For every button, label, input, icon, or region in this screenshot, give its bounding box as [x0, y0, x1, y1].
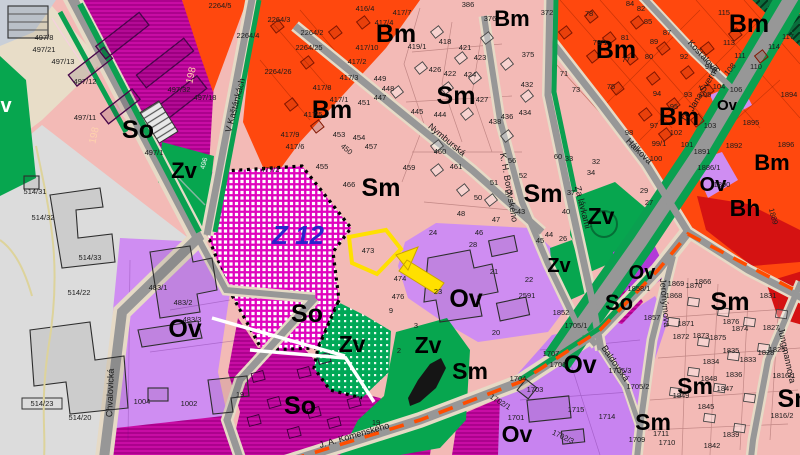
parcel-label: 1714 — [599, 412, 616, 421]
parcel-label: 372 — [541, 8, 554, 17]
parcel-label: 1836 — [726, 370, 743, 379]
parcel-label: 1816/2 — [771, 411, 794, 420]
parcel-label: 460 — [434, 147, 447, 156]
parcel-label: 46 — [475, 228, 483, 237]
parcel-label: 1703 — [527, 385, 544, 394]
parcel-label: 77 — [622, 55, 630, 64]
zone-label: So — [122, 116, 154, 144]
parcel-label: 483/2 — [174, 298, 193, 307]
parcel-label: 44 — [545, 230, 553, 239]
zone-label: So — [284, 392, 316, 420]
parcel-label: 92 — [680, 52, 688, 61]
zone-label: Zv — [171, 158, 197, 183]
parcel-label: 461 — [450, 162, 463, 171]
parcel-label: 2264/3 — [268, 15, 291, 24]
parcel-label: 1828 — [758, 348, 775, 357]
parcel-label: 1709 — [629, 435, 646, 444]
parcel-label: 454 — [353, 133, 366, 142]
parcel-label: 102 — [670, 128, 683, 137]
parcel-label: 497/18 — [194, 93, 217, 102]
parcel-label: 436 — [501, 112, 514, 121]
parcel-label: 447 — [374, 93, 387, 102]
parcel-label: 1704 — [510, 374, 527, 383]
parcel-label: 98 — [625, 128, 633, 137]
parcel-label: 117 — [782, 32, 794, 41]
parcel-label: 514/31 — [24, 187, 47, 196]
zone-label: Bm — [754, 150, 789, 175]
parcel-label: 514/20 — [69, 413, 92, 422]
parcel-label: 1894 — [781, 90, 798, 99]
parcel-label: 1896 — [778, 140, 795, 149]
parcel-label: 115 — [718, 8, 730, 17]
parcel-label: 1857 — [644, 313, 661, 322]
parcel-label: 497/1 — [145, 148, 164, 157]
zone-label: Ov — [449, 285, 482, 313]
parcel-label: 497/13 — [52, 57, 75, 66]
parcel-label: 81 — [621, 33, 629, 42]
parcel-label: 1707 — [543, 349, 560, 358]
parcel-label: 60 — [554, 152, 562, 161]
parcel-label: 514/33 — [79, 253, 102, 262]
parcel-label: 514/23 — [31, 399, 54, 408]
parcel-label: 54 — [505, 188, 513, 197]
parcel-label: 93 — [684, 90, 692, 99]
parcel-label: 3 — [414, 321, 418, 330]
parcel-label: 32 — [592, 157, 600, 166]
parcel-label: 73 — [572, 85, 580, 94]
parcel-label: 1873 — [693, 331, 710, 340]
parcel-label: 87 — [663, 28, 671, 37]
parcel-label: 1848 — [701, 374, 718, 383]
parcel-label: 376 — [484, 14, 497, 23]
parcel-label: 1858/1 — [628, 284, 651, 293]
zone-label: Sm — [711, 288, 750, 316]
parcel-label: 104 — [713, 82, 726, 91]
parcel-label: 449 — [374, 74, 387, 83]
parcel-label: 43 — [517, 207, 525, 216]
parcel-label: 2264/25 — [295, 43, 322, 52]
parcel-label: 434 — [519, 108, 532, 117]
parcel-label: 514/22 — [68, 288, 91, 297]
parcel-label: 50 — [474, 193, 482, 202]
parcel-label: 9 — [389, 306, 393, 315]
parcel-label: 1706 — [550, 360, 567, 369]
parcel-label: 1004 — [134, 397, 151, 406]
parcel-label: 1711 — [653, 429, 669, 438]
parcel-label: 2264/4 — [237, 31, 260, 40]
zone-label: Sm — [452, 358, 488, 384]
parcel-label: 474 — [394, 274, 407, 283]
zone-label: Zv — [339, 331, 366, 357]
parcel-label: 1701 — [508, 413, 525, 422]
parcel-label: 33 — [565, 154, 573, 163]
parcel-label: 438 — [489, 117, 502, 126]
parcel-label: 1869 — [668, 279, 685, 288]
parcel-label: 417/3 — [340, 73, 359, 82]
parcel-label: 2264/26 — [264, 67, 291, 76]
parcel-label: 1890 — [714, 180, 731, 189]
parcel-label: 1835 — [723, 346, 740, 355]
parcel-label: 423 — [474, 53, 487, 62]
parcel-label: 1868 — [666, 291, 683, 300]
parcel-label: 417/8 — [313, 83, 332, 92]
parcel-label: 2 — [397, 346, 401, 355]
parcel-label: 483/3 — [183, 315, 202, 324]
parcel-label: 37 — [567, 188, 575, 197]
zone-label: Bm — [494, 6, 529, 31]
parcel-label: 419/1 — [408, 42, 427, 51]
parcel-label: 20 — [492, 328, 500, 337]
parcel-label: 1892 — [726, 141, 743, 150]
zone-label: Sm — [524, 180, 563, 208]
parcel-label: 23 — [434, 287, 442, 296]
parcel-label: 457 — [365, 142, 378, 151]
parcel-label: 84 — [626, 0, 634, 8]
parcel-label: 95 — [670, 102, 678, 111]
parcel-label: 51 — [490, 178, 498, 187]
parcel-label: 1852 — [553, 308, 570, 317]
zone-label: Zv — [415, 332, 442, 358]
parcel-label: 417/1 — [330, 95, 349, 104]
parcel-label: 1705/3 — [609, 366, 632, 375]
parcel-label: 97 — [650, 121, 658, 130]
parcel-label: 1834 — [703, 357, 720, 366]
parcel-label: 75 — [607, 82, 615, 91]
parcel-label: 497/21 — [33, 45, 56, 54]
parcel-label: 111 — [734, 51, 745, 60]
parcel-label: 29 — [640, 186, 648, 195]
parcel-label: 1831 — [760, 291, 777, 300]
zone-label: So — [291, 300, 323, 328]
parcel-label: 22 — [525, 275, 533, 284]
parcel-label: 99/1 — [652, 139, 667, 148]
parcel-label: 444 — [434, 110, 447, 119]
parcel-label: 417/9 — [281, 130, 300, 139]
zone-label: So — [605, 290, 633, 315]
parcel-label: 421 — [459, 43, 472, 52]
parcel-label: 105 — [699, 90, 712, 99]
parcel-label: 78 — [585, 9, 593, 18]
parcel-label: 432 — [521, 80, 534, 89]
parcel-label: 56 — [508, 156, 516, 165]
parcel-label: 94 — [653, 89, 661, 98]
parcel-label: 89 — [650, 37, 658, 46]
parcel-label: 106 — [730, 85, 743, 94]
parcel-label: 19 — [236, 390, 244, 399]
parcel-label: 417/4 — [375, 18, 394, 27]
parcel-label: 2591 — [519, 291, 536, 300]
parcel-label: 477/2 — [261, 165, 280, 174]
parcel-label: 386 — [462, 0, 475, 9]
parcel-label: 1710 — [659, 438, 676, 447]
parcel-label: 1847 — [717, 384, 734, 393]
zone-label: Sm — [778, 385, 800, 413]
parcel-label: 514/32 — [32, 213, 55, 222]
zoning-map[interactable]: SoZvBmBmBmBmBmBmBmSmSmSmOvOvBhZvZvOvZvZv… — [0, 0, 800, 455]
parcel-label: 445 — [411, 107, 424, 116]
parcel-label: 455 — [316, 162, 329, 171]
parcel-label: 375 — [522, 50, 535, 59]
parcel-label: 34 — [587, 168, 595, 177]
parcel-label: 497/11 — [74, 113, 96, 122]
zone-label: Bm — [729, 10, 769, 38]
parcel-label: 1872 — [673, 332, 690, 341]
parcel-label: 101 — [681, 140, 694, 149]
parcel-label: 2264/5 — [209, 1, 232, 10]
parcel-label: 28 — [469, 240, 477, 249]
street-label: Chvalovická — [104, 368, 116, 417]
parcel-label: 47 — [492, 215, 500, 224]
map-viewport: SoZvBmBmBmBmBmBmBmSmSmSmOvOvBhZvZvOvZvZv… — [0, 0, 800, 455]
parcel-label: 1891 — [694, 147, 711, 156]
parcel-label: 1816/1 — [773, 371, 796, 380]
parcel-label: 1002 — [181, 399, 198, 408]
zone-label: Bh — [730, 195, 761, 221]
parcel-label: 1845 — [698, 402, 715, 411]
parcel-label: 427 — [476, 95, 489, 104]
zone-label: Ov — [717, 97, 738, 114]
parcel-label: 451 — [358, 98, 371, 107]
parcel-label: 85 — [644, 17, 652, 26]
zone-label: Ov — [629, 262, 657, 284]
parcel-label: 424 — [464, 70, 477, 79]
parcel-label: 466 — [343, 180, 356, 189]
parcel-label: 52 — [519, 171, 527, 180]
parcel-label: 110 — [750, 62, 762, 71]
parcel-label: 80 — [645, 52, 653, 61]
parcel-label: 113 — [723, 38, 735, 47]
parcel-label: 497/8 — [35, 33, 54, 42]
parcel-label: 422 — [444, 69, 457, 78]
parcel-label: 100 — [650, 154, 663, 163]
zone-label: v — [0, 95, 12, 117]
parcel-label: 1849 — [673, 391, 690, 400]
parcel-label: 45 — [536, 236, 544, 245]
parcel-label: 79/1 — [593, 38, 608, 47]
parcel-label: 1833 — [740, 355, 757, 364]
parcel-label: 2264/2 — [301, 28, 324, 37]
parcel-label: 21 — [490, 267, 498, 276]
parcel-label: 497/12 — [74, 77, 97, 86]
zone-label: Ov — [502, 421, 533, 447]
parcel-label: 48 — [457, 209, 465, 218]
parcel-label: 1886/1 — [698, 163, 721, 172]
parcel-label: 27 — [645, 198, 653, 207]
parcel-label: 40 — [562, 207, 570, 216]
parcel-label: 1839 — [723, 430, 740, 439]
parcel-label: 1842 — [704, 441, 721, 450]
parcel-label: 416/4 — [356, 4, 375, 13]
parcel-label: 418 — [439, 37, 452, 46]
parcel-label: 26 — [559, 234, 567, 243]
zone-label: Sm — [362, 174, 401, 202]
zone-label: Zv — [547, 255, 571, 277]
parcel-label: 91 — [705, 62, 713, 71]
parcel-label: 1874 — [732, 324, 749, 333]
parcel-label: 417/6 — [286, 142, 305, 151]
parcel-label: 1875 — [710, 333, 727, 342]
parcel-label: 24 — [429, 228, 437, 237]
parcel-label: 453 — [333, 130, 346, 139]
parcel-label: 82 — [637, 4, 645, 13]
parcel-label: 1705/1 — [565, 321, 588, 330]
parcel-label: 1871 — [678, 319, 695, 328]
parcel-label: 1866 — [695, 277, 712, 286]
parcel-label: 71 — [560, 69, 568, 78]
zone-label: Z 12 — [271, 220, 325, 250]
parcel-label: 417/2 — [348, 57, 367, 66]
parcel-label: 483/1 — [149, 283, 168, 292]
parcel-label: 459 — [403, 163, 416, 172]
parcel-label: 497/32 — [168, 85, 191, 94]
parcel-label: 1827 — [763, 323, 780, 332]
parcel-label: 114 — [768, 42, 780, 51]
parcel-label: 448 — [382, 84, 395, 93]
parcel-label: 1715 — [568, 405, 585, 414]
parcel-label: 103 — [704, 121, 717, 130]
parcel-label: 19 — [372, 418, 380, 427]
zone-label: Ov — [563, 351, 596, 379]
parcel-label: 1705/2 — [627, 382, 650, 391]
parcel-label: 426 — [429, 65, 442, 74]
parcel-label: 476 — [392, 292, 405, 301]
parcel-label: 417/7 — [393, 8, 412, 17]
parcel-label: 417/10 — [356, 43, 379, 52]
parcel-label: 1895 — [743, 118, 760, 127]
parcel-label: 417/5 — [304, 110, 323, 119]
parcel-label: 473 — [362, 246, 375, 255]
zone-label: Sm — [437, 82, 476, 110]
